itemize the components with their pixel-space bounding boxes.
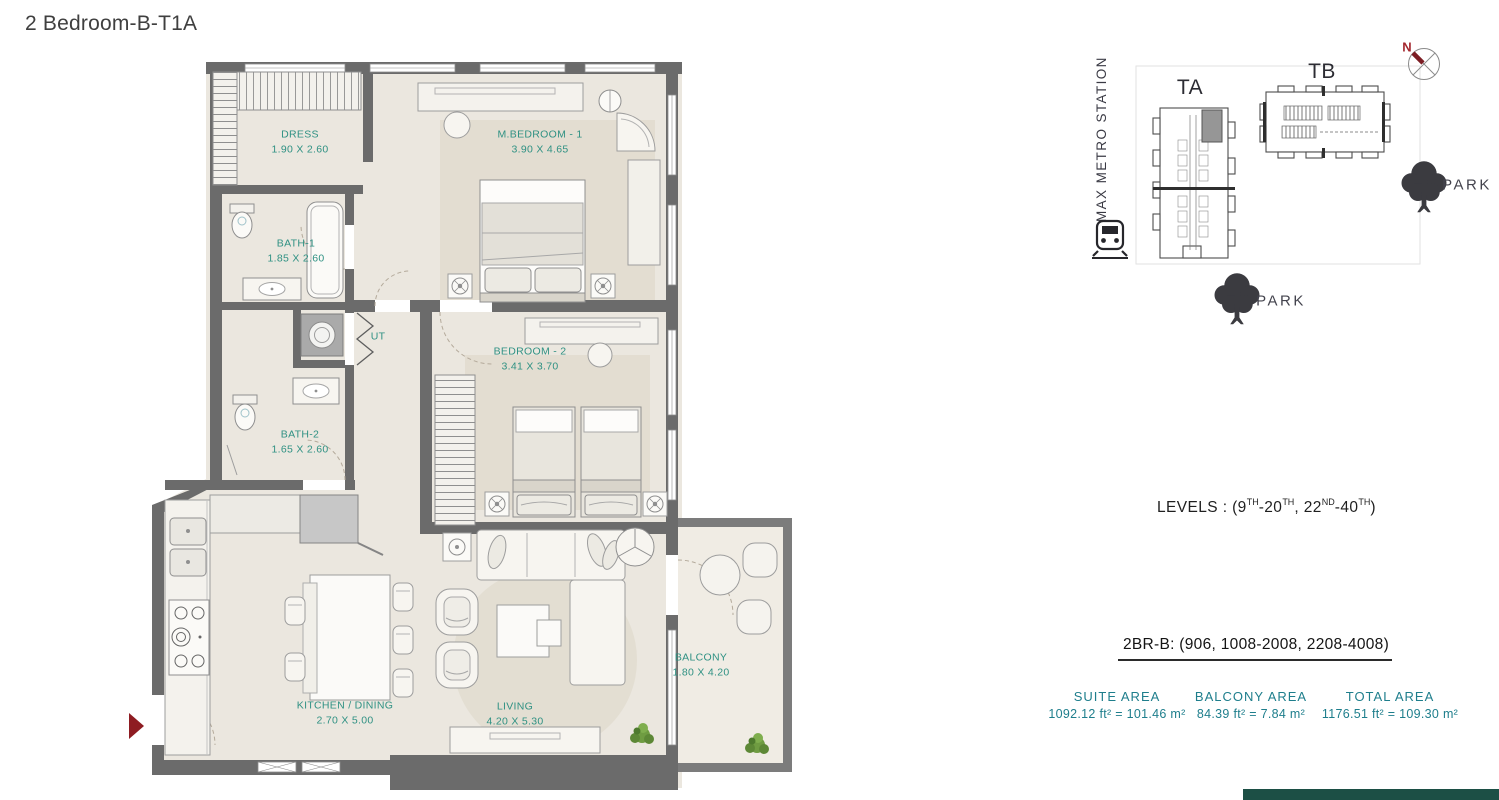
balcony-table — [700, 555, 740, 595]
tower-ta-label: TA — [1177, 76, 1203, 100]
entry-arrow-icon — [129, 713, 144, 739]
room-label-dress: DRESS1.90 X 2.60 — [271, 127, 328, 156]
dresser — [418, 83, 583, 111]
floor-plan-drawing — [125, 55, 805, 790]
room-label-bedroom2: BEDROOM - 23.41 X 3.70 — [494, 344, 567, 373]
key-plan: TA TB N PARK PARK — [1085, 35, 1499, 335]
unit-numbers-line: 2BR-B: (906, 1008-2008, 2208-4008) — [1123, 636, 1389, 654]
dining-table — [310, 575, 390, 700]
tv-console — [450, 727, 600, 753]
balcony-area-stat: BALCONY AREA 84.39 ft² = 7.84 m² — [1195, 689, 1307, 721]
desk-chair — [588, 343, 612, 367]
balcony-chair — [737, 600, 771, 634]
balcony-chair — [743, 543, 777, 577]
compass-north-label: N — [1402, 40, 1411, 55]
twin-bed-1 — [513, 407, 575, 517]
compass-icon — [1409, 49, 1440, 80]
room-label-ut: UT — [371, 330, 386, 345]
tree-icon — [1215, 273, 1260, 324]
floor-plan: DRESS1.90 X 2.60 M.BEDROOM - 13.90 X 4.6… — [125, 55, 805, 790]
stove — [169, 600, 209, 675]
park-label-bottom: PARK — [1256, 293, 1306, 310]
desk-chair — [444, 112, 470, 138]
chaise — [570, 580, 625, 685]
room-label-kitchen-dining: KITCHEN / DINING2.70 X 5.00 — [297, 698, 393, 727]
suite-area-stat: SUITE AREA 1092.12 ft² = 101.46 m² — [1048, 689, 1185, 721]
page-title: 2 Bedroom-B-T1A — [25, 12, 197, 36]
metro-station-label: MAX METRO STATION — [1094, 46, 1109, 222]
room-label-living: LIVING4.20 X 5.30 — [486, 699, 543, 728]
wardrobe — [628, 160, 660, 265]
footer-accent-bar — [1243, 789, 1499, 800]
tower-tb-label: TB — [1308, 60, 1336, 84]
highlighted-unit — [1202, 110, 1222, 142]
double-bed — [480, 180, 585, 302]
room-label-bath1: BATH-11.85 X 2.60 — [267, 236, 324, 265]
park-label-right: PARK — [1442, 177, 1492, 194]
fridge — [300, 495, 358, 543]
room-label-bath2: BATH-21.65 X 2.60 — [271, 427, 328, 456]
key-plan-drawing — [1085, 35, 1499, 335]
room-label-balcony: BALCONY1.80 X 4.20 — [672, 650, 729, 679]
twin-bed-2 — [581, 407, 641, 517]
room-label-master-bedroom: M.BEDROOM - 13.90 X 4.65 — [498, 127, 583, 156]
building-ta — [1153, 108, 1235, 258]
washing-machine — [301, 314, 343, 356]
unit-numbers-underline — [1118, 659, 1392, 661]
metro-icon — [1091, 218, 1129, 264]
counter — [210, 495, 300, 533]
building-tb — [1260, 86, 1390, 158]
total-area-stat: TOTAL AREA 1176.51 ft² = 109.30 m² — [1322, 689, 1458, 721]
levels-line: LEVELS : (9TH-20TH, 22ND-40TH) — [1157, 498, 1376, 517]
